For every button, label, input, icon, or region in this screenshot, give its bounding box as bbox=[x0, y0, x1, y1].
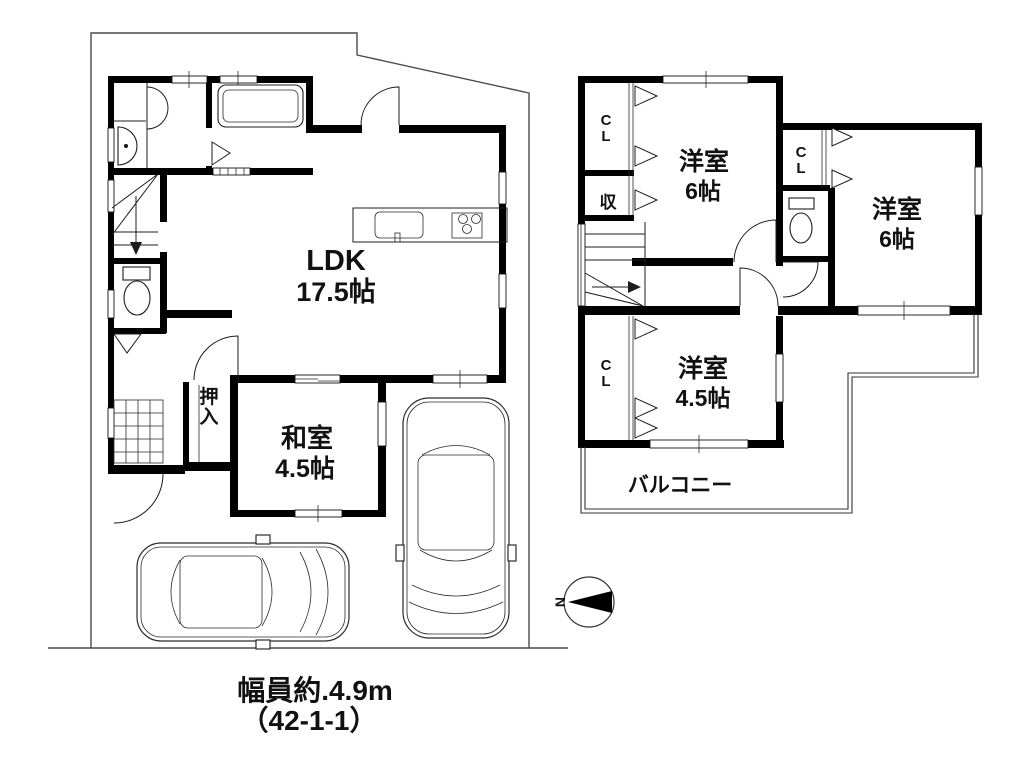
toilet-tank-icon bbox=[123, 267, 150, 280]
closet-door-icon bbox=[635, 319, 657, 339]
label-closet-b: CL bbox=[796, 144, 807, 177]
closet-door-icon bbox=[635, 398, 657, 418]
floorplan-page: LDK 17.5帖 和室 4.5帖 押入 bbox=[0, 0, 1024, 766]
toilet-1f bbox=[123, 267, 150, 315]
ldk-north-door-arc bbox=[361, 87, 399, 125]
toilet-tank-icon bbox=[789, 198, 814, 209]
label-balcony: バルコニー bbox=[628, 474, 733, 497]
room-size-washitsu: 4.5帖 bbox=[275, 455, 335, 483]
label-storage: 収 bbox=[600, 193, 618, 212]
label-oshiire: 押入 bbox=[199, 385, 218, 428]
bathtub bbox=[218, 85, 303, 127]
car-top-view-vertical bbox=[396, 398, 516, 638]
label-closet-a: CL bbox=[601, 112, 612, 145]
entrance-tiles bbox=[114, 400, 163, 463]
burner-icon bbox=[463, 225, 472, 234]
room-label-bedroom-c: 洋室 bbox=[678, 354, 728, 383]
closet-door-icon bbox=[635, 190, 657, 210]
bedroom-c-door-arc bbox=[740, 268, 778, 306]
floorplan-drawing: LDK 17.5帖 和室 4.5帖 押入 bbox=[0, 0, 1024, 766]
faucet-icon bbox=[395, 233, 400, 242]
compass-north-label: N bbox=[552, 597, 568, 607]
burner-icon bbox=[459, 215, 468, 224]
caption-lot-number: （42-1-1） bbox=[241, 704, 378, 736]
car-mirror-icon bbox=[396, 545, 404, 561]
caption: 幅員約.4.9m （42-1-1） bbox=[237, 674, 393, 736]
toilet-bowl-icon bbox=[124, 281, 150, 315]
car-mirror-icon bbox=[508, 545, 516, 561]
room-label-bedroom-b: 洋室 bbox=[872, 195, 922, 224]
closet-door-icon bbox=[832, 170, 852, 188]
burner-icon bbox=[472, 215, 481, 224]
room-label-washitsu: 和室 bbox=[281, 423, 333, 453]
closet-door-icon bbox=[635, 146, 657, 166]
washroom bbox=[114, 83, 168, 168]
closet-door-icon bbox=[635, 418, 657, 438]
bath-door-icon bbox=[212, 142, 230, 165]
room-size-ldk: 17.5帖 bbox=[296, 277, 376, 307]
room-label-bedroom-a: 洋室 bbox=[679, 147, 729, 176]
stairs-1f bbox=[112, 174, 158, 255]
closet-door-icon bbox=[635, 86, 657, 106]
room-size-bedroom-c: 4.5帖 bbox=[676, 385, 731, 411]
compass: N bbox=[552, 577, 614, 627]
kitchen bbox=[353, 208, 507, 242]
room-label-ldk: LDK bbox=[306, 245, 366, 277]
car-mirror-icon bbox=[256, 535, 270, 544]
closet-door-icon bbox=[832, 128, 852, 146]
entrance-door-arc bbox=[114, 474, 163, 523]
double-door-icon bbox=[147, 87, 168, 108]
room-size-bedroom-a: 6帖 bbox=[685, 178, 721, 204]
label-closet-c: CL bbox=[601, 357, 612, 390]
bedroom-a-door-arc bbox=[734, 220, 776, 262]
caption-road-width: 幅員約.4.9m bbox=[237, 674, 393, 706]
toilet-door-icon bbox=[114, 334, 141, 353]
kitchen-counter bbox=[353, 208, 507, 242]
car-top-view-horizontal bbox=[137, 535, 349, 649]
wc-door-arc bbox=[783, 262, 818, 297]
bathroom bbox=[212, 85, 303, 165]
car-mirror-icon bbox=[256, 640, 270, 649]
room-size-bedroom-b: 6帖 bbox=[879, 226, 915, 252]
toilet-bowl-icon bbox=[790, 213, 812, 243]
hall-door-arc bbox=[194, 336, 238, 380]
toilet-2f bbox=[789, 198, 814, 243]
entrance bbox=[114, 334, 163, 523]
kitchen-sink bbox=[375, 212, 423, 238]
floor2-plan: 洋室 6帖 洋室 6帖 洋室 4.5帖 CL CL CL 収 バルコニー bbox=[578, 71, 982, 513]
